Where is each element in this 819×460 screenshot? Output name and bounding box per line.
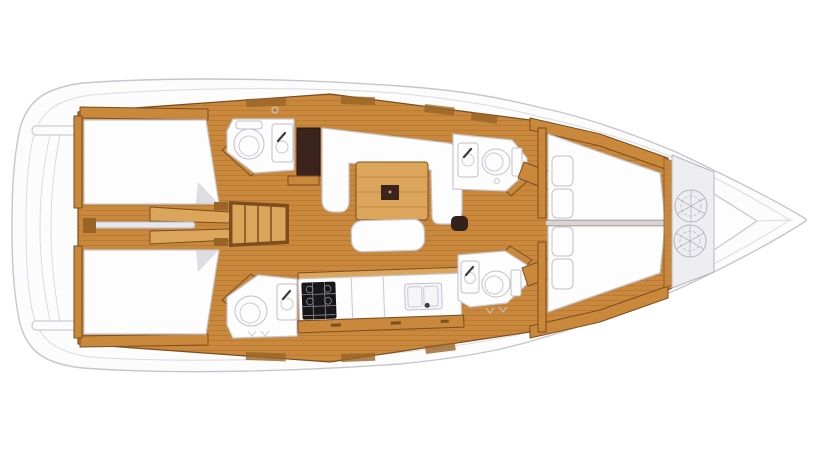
tiller-rod <box>85 222 195 228</box>
corridor-box <box>83 218 96 233</box>
aft-cabin-starboard <box>74 246 219 347</box>
toilet <box>234 129 264 159</box>
wardrobe-dark-panel <box>297 128 320 176</box>
side-shelf-port <box>80 107 208 120</box>
stern-rail-top <box>32 126 78 135</box>
step-frame-top <box>214 202 228 210</box>
saloon-table <box>356 162 428 220</box>
table-insert-latch <box>389 191 392 194</box>
toilet-cistern <box>511 270 521 296</box>
galley <box>296 267 464 333</box>
stern-rail-bottom <box>32 321 78 330</box>
side-shelf-starboard <box>80 334 208 347</box>
toilet <box>482 271 510 297</box>
anchor-rope-coil-bottom <box>674 225 706 257</box>
aft-cabin-port <box>74 107 219 208</box>
bow-bulkhead <box>664 158 672 288</box>
washbasin-cabinet <box>461 261 479 293</box>
steps-treads <box>232 204 286 244</box>
headboard-port <box>74 116 82 208</box>
stove <box>301 282 336 320</box>
washbasin-cabinet <box>458 143 478 177</box>
anchor-rope-coil-top <box>675 190 707 222</box>
toilet-cistern <box>236 121 262 129</box>
berth-head-panel-top <box>538 128 546 218</box>
yacht-floor-plan <box>0 0 819 460</box>
headboard-starboard <box>74 246 82 338</box>
galley-sink <box>404 283 442 310</box>
entry-mat <box>451 216 468 231</box>
washbasin-cabinet <box>272 124 293 162</box>
wardrobe-shelf <box>288 176 319 185</box>
step-frame-bottom <box>214 238 228 246</box>
saloon-bench <box>351 219 425 252</box>
yacht-floor-plan-canvas <box>0 0 819 460</box>
berth-head-panel-bottom <box>538 242 546 332</box>
washbasin-cabinet <box>277 284 297 320</box>
berth-divider <box>546 221 666 225</box>
